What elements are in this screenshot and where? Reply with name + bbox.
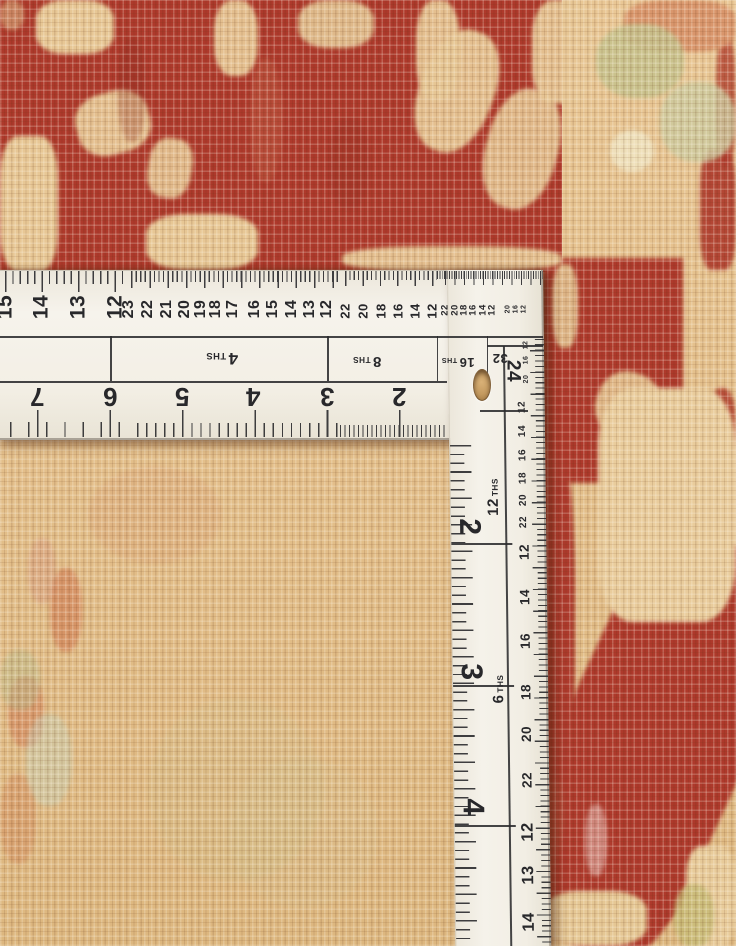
ruler-scale-label: 4THS — [206, 349, 238, 367]
ruler-scale-label-suffix: THS — [496, 675, 505, 693]
ruler-number: 18 — [208, 300, 224, 319]
ruler-number: 4 — [246, 384, 261, 410]
ruler-number: 20 — [177, 300, 193, 319]
ruler-number: 20 — [357, 303, 370, 318]
ruler-line — [327, 336, 329, 381]
ruler-number: 3 — [320, 384, 335, 410]
ruler-scale-label-number: 6 — [490, 695, 507, 704]
ruler-ticks — [0, 271, 129, 293]
ruler-scale-label: 6THS — [491, 675, 507, 704]
ruler-number: 16 — [523, 356, 530, 365]
ruler-number: 22 — [520, 772, 534, 788]
ruler-number: 3 — [456, 663, 486, 680]
ruler-number: 24 — [504, 360, 523, 382]
ruler-number: 20 — [505, 305, 512, 314]
ruler-line — [480, 410, 528, 412]
ruler-number: 12 — [426, 303, 439, 318]
ruler-number: 20 — [519, 494, 529, 506]
ruler-line — [455, 825, 516, 827]
ruler-line — [0, 336, 543, 338]
ruler-scale-label-number: 12 — [485, 498, 502, 516]
ruler-ticks — [437, 271, 543, 291]
ruler-number: 16 — [519, 633, 533, 649]
ruler-number: 2 — [392, 384, 407, 410]
ruler-ticks — [129, 271, 338, 293]
ruler-scale-label: 16THS — [441, 354, 474, 370]
rug-photo: 1216201214161820221214161820221213142341… — [0, 0, 736, 946]
ruler-hang-hole — [473, 369, 491, 401]
ruler-number: 20 — [523, 375, 530, 384]
ruler-scale-label-number: 4 — [228, 349, 238, 368]
framing-square-ruler: 1216201214161820221214161820221213142341… — [0, 0, 736, 946]
ruler-number: 12 — [518, 544, 532, 560]
ruler-scale-label: 12THS — [486, 478, 502, 516]
ruler-number: 14 — [31, 295, 52, 319]
ruler-scale-label-suffix: THS — [441, 356, 457, 364]
ruler-number: 16 — [392, 303, 405, 318]
ruler-scale-label-suffix: THS — [491, 478, 500, 496]
ruler-line — [437, 336, 438, 381]
ruler-vertical-arm: 1216201214161820221214161820221213142341… — [447, 270, 551, 946]
ruler-scale-label-suffix: THS — [353, 355, 371, 364]
ruler-line — [110, 336, 112, 381]
ruler-scale-label: 8THS — [353, 353, 382, 369]
ruler-number: 2 — [454, 518, 484, 535]
ruler-number: 12 — [319, 300, 335, 319]
ruler-number: 12 — [487, 304, 497, 316]
ruler-number: 4 — [457, 798, 487, 815]
ruler-ticks — [338, 271, 437, 293]
ruler-ticks — [130, 405, 338, 437]
ruler-number: 14 — [284, 300, 300, 319]
ruler-number: 16 — [513, 305, 520, 314]
ruler-number: 18 — [518, 472, 528, 484]
ruler-number: 13 — [68, 295, 89, 319]
ruler-number: 22 — [140, 300, 156, 319]
ruler-number: 18 — [519, 684, 533, 700]
ruler-number: 17 — [225, 300, 241, 319]
ruler-number: 20 — [520, 726, 534, 742]
ruler-number: 23 — [121, 300, 137, 319]
ruler-number: 22 — [339, 303, 352, 318]
ruler-line — [487, 345, 543, 347]
ruler-number: 22 — [519, 516, 529, 528]
ruler-number: 21 — [159, 300, 175, 319]
ruler-number: 6 — [103, 384, 118, 410]
ruler-number: 13 — [520, 865, 537, 884]
ruler-scale-label-number: 16 — [459, 355, 474, 370]
ruler-number: 5 — [175, 384, 190, 410]
ruler-line — [451, 543, 512, 545]
ruler-number: 7 — [30, 384, 45, 410]
ruler-number: 13 — [302, 300, 318, 319]
ruler-scale-label-number: 8 — [373, 353, 382, 370]
ruler-number: 14 — [409, 303, 422, 318]
ruler-number: 15 — [265, 300, 281, 319]
ruler-scale-label-suffix: THS — [206, 351, 226, 361]
ruler-number: 14 — [521, 912, 538, 931]
ruler-number: 16 — [247, 300, 263, 319]
ruler-number: 14 — [518, 425, 528, 437]
ruler-number: 12 — [519, 822, 536, 841]
ruler-number: 15 — [0, 295, 16, 319]
ruler-number: 12 — [521, 305, 528, 314]
ruler-number: 14 — [518, 589, 532, 605]
ruler-number: 18 — [375, 303, 388, 318]
ruler-number: 16 — [518, 449, 528, 461]
ruler-line — [0, 381, 447, 383]
